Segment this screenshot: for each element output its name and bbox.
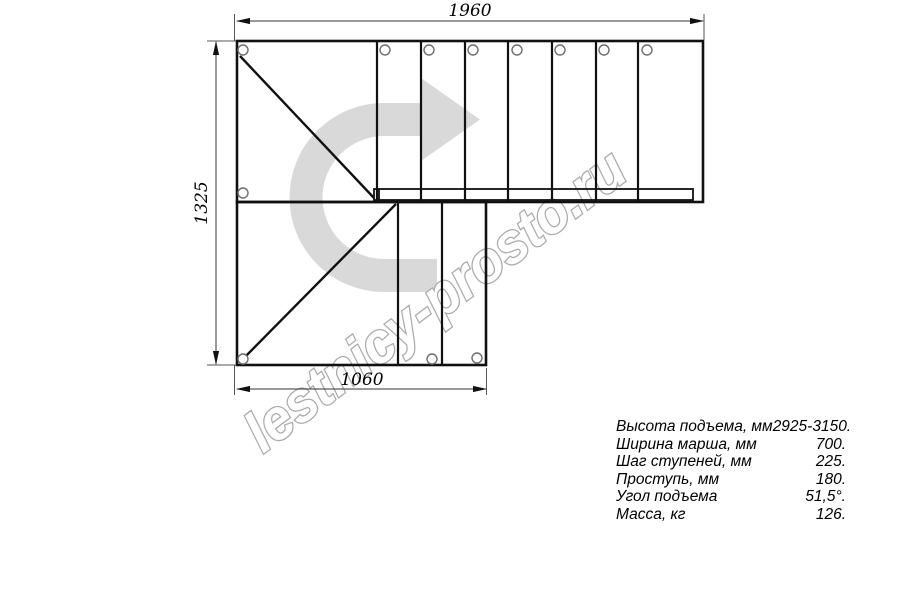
dim-left-label: 1325 xyxy=(192,181,212,224)
arrowhead-right-icon xyxy=(473,386,487,392)
arrow-shaft xyxy=(306,120,437,276)
spec-value: 51,5°. xyxy=(805,488,846,506)
spec-row-flight-width: Ширина марша, мм 700. xyxy=(616,436,846,454)
spec-row-height: Высота подъема, мм 2925-3150. xyxy=(616,418,846,436)
dimension-annotations: 1960 1325 1060 xyxy=(192,1,704,395)
spec-value: 2925-3150. xyxy=(773,418,851,436)
spec-row-mass: Масса, кг 126. xyxy=(616,506,846,524)
arrowhead-up-icon xyxy=(213,41,219,55)
spec-label: Проступь, мм xyxy=(616,471,719,489)
arrow-head xyxy=(421,78,480,161)
spec-label: Высота подъема, мм xyxy=(616,418,773,436)
spec-value: 126. xyxy=(816,506,846,524)
spec-label: Шаг ступеней, мм xyxy=(616,453,752,471)
spec-row-tread: Проступь, мм 180. xyxy=(616,471,846,489)
spec-value: 180. xyxy=(816,471,846,489)
dim-bottom-label: 1060 xyxy=(340,370,383,390)
specs-table: Высота подъема, мм 2925-3150. Ширина мар… xyxy=(616,418,846,524)
plan-linework xyxy=(237,41,703,365)
spec-row-angle: Угол подъема 51,5°. xyxy=(616,488,846,506)
spec-label: Ширина марша, мм xyxy=(616,436,757,454)
spec-value: 700. xyxy=(816,436,846,454)
drawing-canvas: lestnicy-prosto.ru xyxy=(0,0,900,600)
spec-label: Угол подъема xyxy=(616,488,717,506)
arrowhead-left-icon xyxy=(236,18,250,24)
dim-top-label: 1960 xyxy=(448,1,491,21)
arrowhead-left-icon xyxy=(236,386,250,392)
extension-lines xyxy=(207,14,704,395)
arrowhead-down-icon xyxy=(213,351,219,365)
arrowhead-right-icon xyxy=(690,18,704,24)
spec-label: Масса, кг xyxy=(616,506,685,524)
spec-row-step-pitch: Шаг ступеней, мм 225. xyxy=(616,453,846,471)
dim-top-1960: 1960 xyxy=(236,1,704,24)
spec-value: 225. xyxy=(816,453,846,471)
dim-left-1325: 1325 xyxy=(192,41,219,365)
